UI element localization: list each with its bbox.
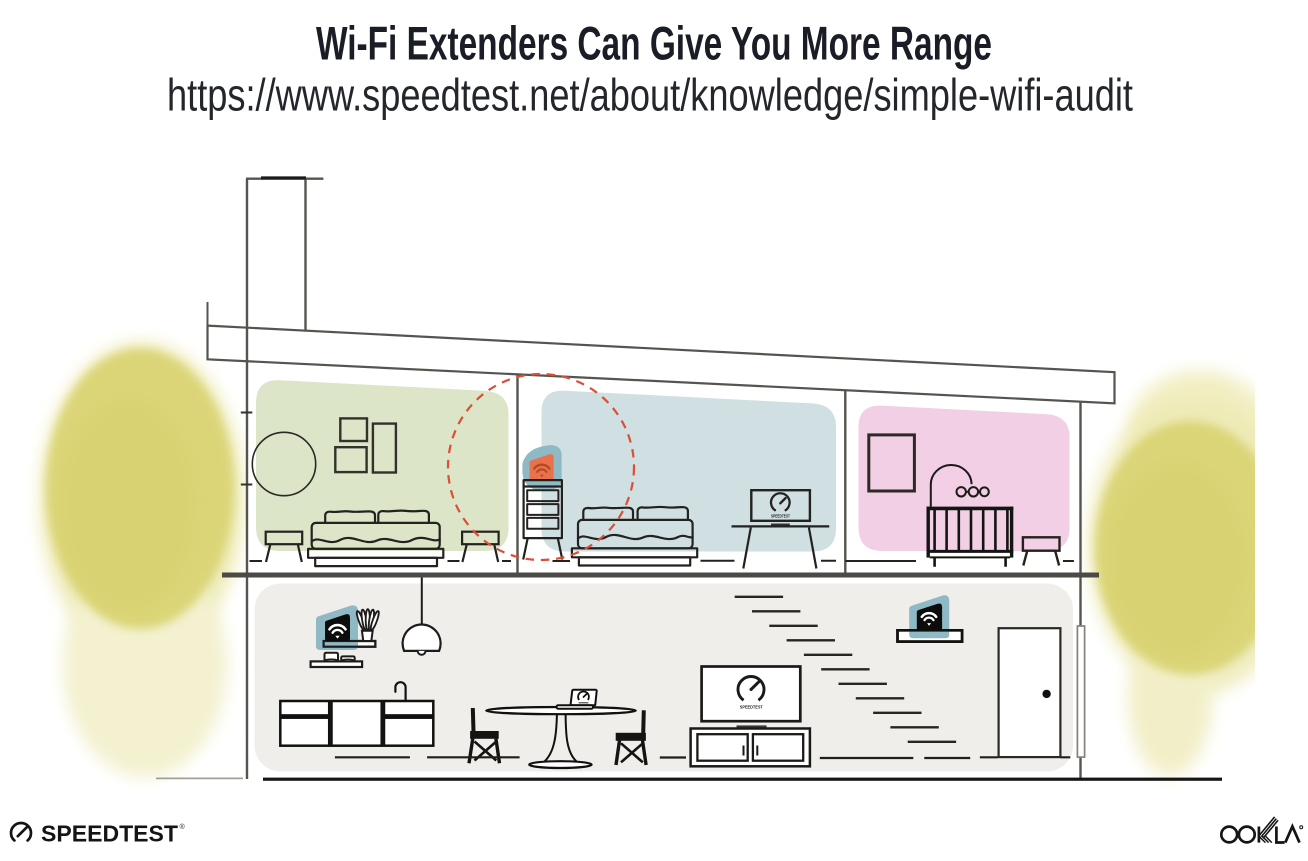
svg-text:SPEEDTEST: SPEEDTEST xyxy=(771,514,790,519)
svg-text:https://www.speedtest.net/abou: https://www.speedtest.net/about/knowledg… xyxy=(167,70,1133,121)
svg-text:SPEEDTEST: SPEEDTEST xyxy=(740,705,763,711)
svg-text:®: ® xyxy=(180,823,186,831)
svg-text:SPEEDTEST: SPEEDTEST xyxy=(41,821,179,847)
svg-text:Wi-Fi Extenders Can Give You M: Wi-Fi Extenders Can Give You More Range xyxy=(316,17,992,70)
